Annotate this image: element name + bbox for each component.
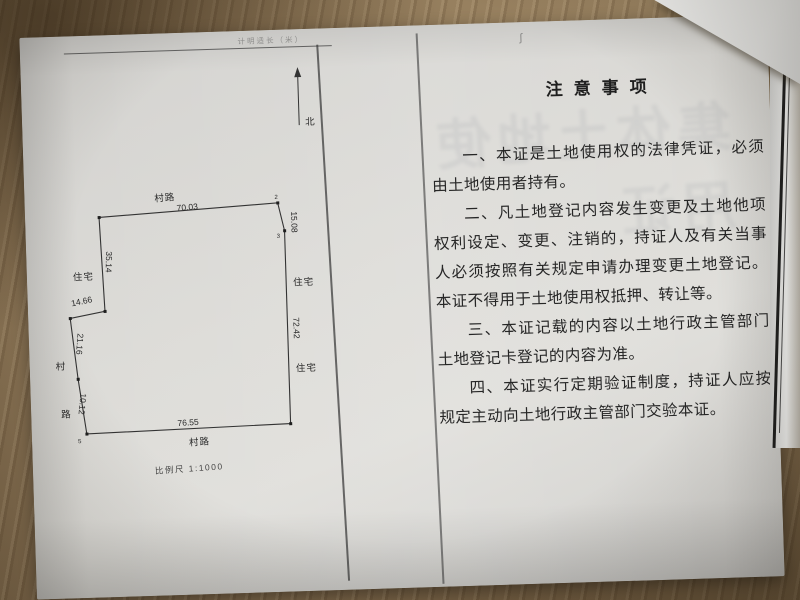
scale-label: 比例尺 1:1000 [155,461,224,476]
edge-length-right-upper: 15.08 [289,211,300,233]
parcel-boundary [67,203,291,435]
edge-length-left-upper: 35.14 [104,251,114,273]
page-edge-stack [770,56,800,448]
edge-length-right-lower: 72.42 [291,317,302,339]
notice-paragraph-4: 四、本证实行定期验证制度，持证人应按规定主动向土地行政主管部门交验本证。 [438,364,773,432]
notice-body: 一、本证是土地使用权的法律凭证，必须由土地使用者持有。 二、凡土地登记内容发生变… [431,133,773,433]
notice-paragraph-1: 一、本证是土地使用权的法律凭证，必须由土地使用者持有。 [431,133,766,201]
photo-of-document: { "photo": { "wood_color": "#8a7355", "p… [0,0,800,600]
road-label-left-top: 村 [56,361,67,373]
boundary-points [65,201,292,436]
road-label-bottom: 村路 [189,435,211,448]
vertex-number-5: 5 [78,439,82,445]
notice-paragraph-3: 三、本证记载的内容以土地行政主管部门土地登记卡登记的内容为准。 [436,306,771,374]
folded-page-corner-surface [645,0,800,84]
north-label: 北 [305,117,316,128]
certificate-paper: 计明适长（米） ʃ 北 2 3 5 村路 70.03 15.08 住宅 [19,14,784,599]
edge-length-top: 70.03 [176,201,198,213]
road-label-left-bottom: 路 [61,408,72,420]
pen-stray-mark: ʃ [519,32,522,44]
notice-paragraph-2: 二、凡土地登记内容发生变更及土地他项权利设定、变更、注销的，持证人及有关当事人必… [433,191,769,317]
north-arrow-icon [294,67,303,125]
edge-length-jog: 14.66 [70,294,93,308]
neighbor-label-right-upper: 住宅 [293,276,314,289]
folded-page-corner [645,0,800,84]
vertex-number-3: 3 [277,234,281,240]
parcel-map: 北 2 3 5 村路 70.03 15.08 住宅 72.42 住宅 35.14… [19,27,379,513]
neighbor-label-right-lower: 住宅 [296,362,317,375]
edge-length-left-mid: 21.16 [74,333,86,355]
road-label-top: 村路 [154,191,176,205]
neighbor-label-left: 住宅 [73,271,94,284]
vertex-number-2: 2 [274,195,278,201]
edge-length-bottom: 76.55 [177,417,199,428]
edge-length-left-lower: 10.12 [77,393,89,415]
